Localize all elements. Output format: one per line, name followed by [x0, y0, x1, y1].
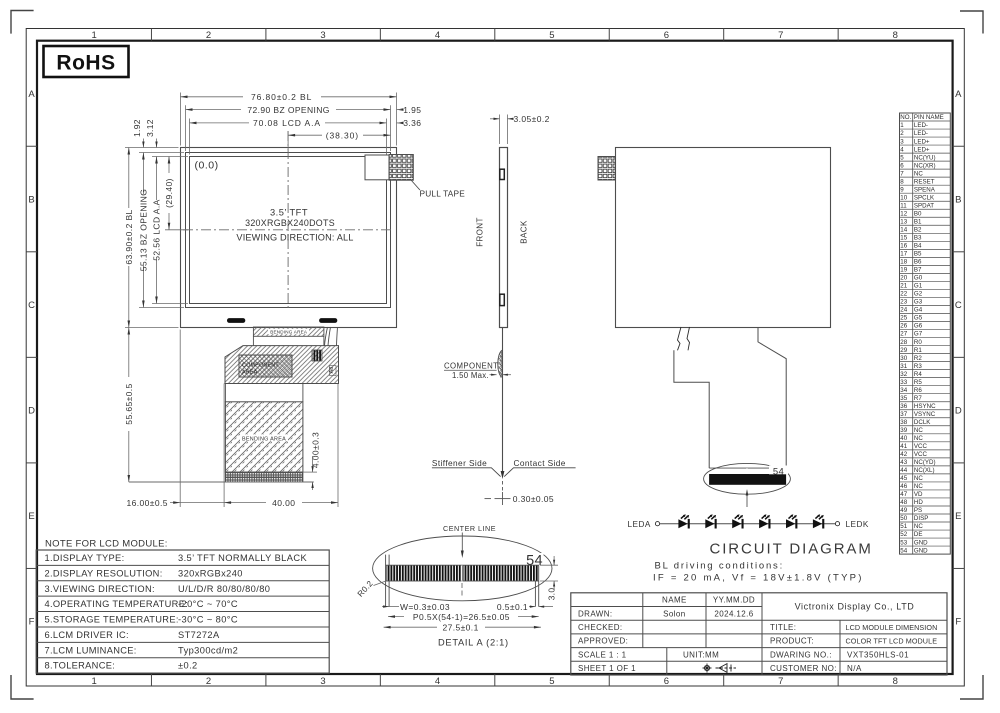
svg-text:44: 44 — [900, 467, 907, 474]
svg-text:72.90 BZ OPENING: 72.90 BZ OPENING — [247, 105, 329, 115]
svg-text:55.65±0.5: 55.65±0.5 — [124, 383, 134, 424]
svg-text:2: 2 — [900, 130, 904, 137]
svg-text:COLOR TFT LCD MODULE: COLOR TFT LCD MODULE — [846, 637, 938, 646]
svg-text:9: 9 — [900, 186, 904, 193]
svg-text:BENDING AREA: BENDING AREA — [270, 330, 308, 335]
svg-text:B: B — [28, 194, 35, 205]
svg-text:0.5±0.1: 0.5±0.1 — [497, 602, 528, 612]
svg-text:1.50 Max.: 1.50 Max. — [452, 371, 489, 380]
svg-text:NC: NC — [914, 475, 923, 482]
svg-text:1: 1 — [91, 30, 96, 41]
svg-text:3.05±0.2: 3.05±0.2 — [514, 114, 550, 124]
svg-text:12: 12 — [900, 210, 907, 217]
svg-text:B5: B5 — [914, 251, 922, 258]
svg-text:54: 54 — [526, 553, 543, 569]
svg-text:G4: G4 — [914, 307, 923, 314]
svg-text:NC: NC — [914, 427, 923, 434]
svg-text:23: 23 — [900, 299, 907, 306]
svg-text:PRODUCT:: PRODUCT: — [770, 637, 814, 646]
svg-text:31: 31 — [900, 363, 907, 370]
svg-text:17: 17 — [900, 251, 907, 258]
svg-text:0.30±0.05: 0.30±0.05 — [513, 494, 554, 504]
svg-text:16.00±0.5: 16.00±0.5 — [127, 498, 168, 508]
svg-text:R1: R1 — [914, 347, 922, 354]
svg-text:3: 3 — [320, 30, 325, 41]
svg-text:18: 18 — [900, 259, 907, 266]
svg-text:40: 40 — [900, 435, 907, 442]
svg-text:55.13 BZ OPENING: 55.13 BZ OPENING — [139, 189, 149, 271]
svg-text:2: 2 — [206, 676, 211, 687]
svg-text:E: E — [955, 511, 962, 522]
svg-text:G2: G2 — [914, 291, 923, 298]
svg-text:30: 30 — [900, 355, 907, 362]
svg-text:NC: NC — [914, 483, 923, 490]
svg-text:F: F — [955, 617, 961, 628]
svg-text:8: 8 — [900, 178, 904, 185]
svg-text:HD: HD — [914, 499, 923, 506]
svg-text:7: 7 — [900, 170, 904, 177]
svg-text:W=0.3±0.03: W=0.3±0.03 — [400, 602, 450, 612]
svg-text:3.36: 3.36 — [403, 118, 421, 128]
svg-text:COMPONENT: COMPONENT — [444, 362, 498, 371]
svg-text:8: 8 — [893, 676, 898, 687]
svg-text:NAME: NAME — [662, 596, 687, 605]
svg-text:B4: B4 — [914, 243, 922, 250]
svg-text:4.OPERATING TEMPERATURE:: 4.OPERATING TEMPERATURE: — [45, 599, 189, 609]
svg-text:Typ300cd/m2: Typ300cd/m2 — [178, 645, 238, 655]
svg-text:2024.12.6: 2024.12.6 — [714, 609, 753, 618]
svg-text:1.DISPLAY TYPE:: 1.DISPLAY TYPE: — [45, 553, 125, 563]
svg-text:(29.40): (29.40) — [164, 178, 174, 208]
svg-text:CHECKED:: CHECKED: — [578, 623, 623, 632]
svg-text:B6: B6 — [914, 259, 922, 266]
svg-text:SHEET 1 OF 1: SHEET 1 OF 1 — [578, 664, 636, 673]
svg-text:B2: B2 — [914, 226, 922, 233]
svg-text:28: 28 — [900, 339, 907, 346]
svg-text:41: 41 — [900, 443, 907, 450]
svg-text:63.90±0.2 BL: 63.90±0.2 BL — [124, 209, 134, 264]
svg-text:SPDAT: SPDAT — [914, 202, 934, 209]
svg-text:6.LCM DRIVER IC:: 6.LCM DRIVER IC: — [45, 630, 129, 640]
svg-text:COMPONENT: COMPONENT — [242, 363, 279, 369]
svg-text:Victronix Display Co., LTD: Victronix Display Co., LTD — [795, 602, 915, 612]
svg-text:NC(XR): NC(XR) — [914, 162, 936, 169]
svg-text:U/L/D/R 80/80/80/80: U/L/D/R 80/80/80/80 — [178, 584, 270, 594]
svg-text:10: 10 — [900, 194, 907, 201]
svg-text:43: 43 — [900, 459, 907, 466]
svg-text:5.STORAGE TEMPERATURE:: 5.STORAGE TEMPERATURE: — [45, 615, 179, 625]
svg-text:3.5’ TFT: 3.5’ TFT — [270, 208, 308, 218]
svg-text:45: 45 — [900, 475, 907, 482]
svg-text:PULL TAPE: PULL TAPE — [420, 189, 466, 199]
svg-text:22: 22 — [900, 291, 907, 298]
svg-text:B1: B1 — [914, 218, 922, 225]
svg-text:RESET: RESET — [914, 178, 935, 185]
svg-text:2: 2 — [206, 30, 211, 41]
svg-text:G7: G7 — [914, 331, 923, 338]
svg-text:7.LCM LUMINANCE:: 7.LCM LUMINANCE: — [45, 645, 137, 655]
svg-text:42: 42 — [900, 451, 907, 458]
svg-text:B7: B7 — [914, 267, 922, 274]
svg-text:54: 54 — [773, 467, 784, 478]
svg-text:8.TOLERANCE:: 8.TOLERANCE: — [45, 661, 116, 671]
svg-text:70.08 LCD A.A: 70.08 LCD A.A — [253, 118, 321, 128]
svg-text:VD: VD — [914, 491, 923, 498]
svg-text:FRONT: FRONT — [476, 217, 485, 247]
svg-text:27.5±0.1: 27.5±0.1 — [442, 622, 478, 632]
svg-text:54: 54 — [900, 547, 907, 554]
svg-text:CUSTOMER NO:: CUSTOMER NO: — [770, 664, 837, 673]
svg-text:RoHS: RoHS — [56, 52, 115, 75]
svg-text:3: 3 — [320, 676, 325, 687]
svg-text:19: 19 — [900, 267, 907, 274]
svg-text:PS: PS — [914, 507, 922, 514]
svg-text:NC: NC — [914, 523, 923, 530]
svg-text:BACK: BACK — [520, 220, 529, 244]
svg-text:48: 48 — [900, 499, 907, 506]
svg-text:LEDA: LEDA — [628, 520, 651, 529]
svg-text:TITLE:: TITLE: — [770, 623, 796, 632]
svg-text:8: 8 — [893, 30, 898, 41]
svg-text:5: 5 — [549, 30, 554, 41]
svg-text:NC(YD): NC(YD) — [914, 459, 936, 466]
svg-text:35: 35 — [900, 395, 907, 402]
svg-text:11: 11 — [900, 202, 907, 209]
svg-text:R3: R3 — [914, 363, 922, 370]
svg-text:4: 4 — [435, 30, 440, 41]
svg-text:(0.0): (0.0) — [195, 160, 219, 172]
svg-text:53: 53 — [900, 539, 907, 546]
svg-text:52.56 LCD A.A: 52.56 LCD A.A — [152, 199, 162, 260]
svg-text:PIN NAME: PIN NAME — [914, 114, 944, 121]
svg-text:20: 20 — [900, 275, 907, 282]
svg-text:-20°C ~ 70°C: -20°C ~ 70°C — [178, 599, 238, 609]
svg-text:N/A: N/A — [847, 664, 862, 673]
svg-text:VCC: VCC — [914, 451, 928, 458]
svg-text:A: A — [955, 89, 962, 100]
svg-text:LED+: LED+ — [914, 146, 930, 153]
svg-text:G0: G0 — [914, 275, 923, 282]
svg-text:7: 7 — [778, 676, 783, 687]
svg-text:HSYNC: HSYNC — [914, 403, 936, 410]
svg-text:±0.2: ±0.2 — [178, 661, 198, 671]
svg-text:R7: R7 — [914, 395, 922, 402]
svg-text:(38.30): (38.30) — [326, 130, 359, 140]
svg-text:R4: R4 — [914, 371, 922, 378]
svg-text:34: 34 — [900, 387, 907, 394]
svg-text:6: 6 — [900, 162, 904, 169]
svg-text:47: 47 — [900, 491, 907, 498]
svg-text:2.DISPLAY RESOLUTION:: 2.DISPLAY RESOLUTION: — [45, 568, 163, 578]
svg-text:NO.: NO. — [900, 114, 911, 121]
svg-text:NC: NC — [914, 435, 923, 442]
svg-text:B0: B0 — [914, 210, 922, 217]
svg-text:C: C — [955, 300, 962, 311]
svg-text:25: 25 — [900, 315, 907, 322]
svg-text:DWARING NO.:: DWARING NO.: — [770, 650, 832, 659]
svg-text:14: 14 — [900, 226, 907, 233]
svg-text:VCC: VCC — [914, 443, 928, 450]
svg-text:29: 29 — [900, 347, 907, 354]
svg-text:1.95: 1.95 — [403, 105, 421, 115]
svg-text:DCLK: DCLK — [914, 419, 931, 426]
svg-text:40.00: 40.00 — [272, 498, 295, 508]
svg-text:NC(YU): NC(YU) — [914, 154, 936, 161]
svg-text:Solon: Solon — [663, 609, 685, 618]
svg-text:LED-: LED- — [914, 122, 928, 129]
svg-text:4: 4 — [435, 676, 440, 687]
svg-text:27: 27 — [900, 331, 907, 338]
svg-text:R2: R2 — [914, 355, 922, 362]
svg-text:D: D — [28, 406, 35, 417]
svg-text:GND: GND — [914, 539, 928, 546]
svg-text:32: 32 — [900, 371, 907, 378]
svg-text:R0: R0 — [914, 339, 922, 346]
svg-text:49: 49 — [900, 507, 907, 514]
svg-text:APPROVED:: APPROVED: — [578, 637, 628, 646]
svg-text:SPCLK: SPCLK — [914, 194, 935, 201]
svg-text:3.5’ TFT NORMALLY BLACK: 3.5’ TFT NORMALLY BLACK — [178, 553, 307, 563]
svg-text:LED-: LED- — [914, 130, 928, 137]
svg-text:16: 16 — [900, 243, 907, 250]
svg-text:NC(XL): NC(XL) — [914, 467, 935, 474]
svg-text:B: B — [955, 194, 962, 205]
svg-text:AREA: AREA — [242, 370, 258, 376]
svg-text:320xRGBx240: 320xRGBx240 — [178, 568, 243, 578]
svg-text:NC: NC — [914, 170, 923, 177]
svg-text:24: 24 — [900, 307, 907, 314]
svg-text:E: E — [28, 511, 35, 522]
svg-text:G3: G3 — [914, 299, 923, 306]
svg-text:6: 6 — [664, 676, 669, 687]
svg-text:GND: GND — [914, 547, 928, 554]
svg-text:52: 52 — [900, 531, 907, 538]
svg-text:1: 1 — [900, 122, 904, 129]
svg-text:3: 3 — [900, 138, 904, 145]
svg-text:LED+: LED+ — [914, 138, 930, 145]
svg-text:51: 51 — [900, 523, 907, 530]
svg-text:B3: B3 — [914, 235, 922, 242]
svg-text:P0.5X(54-1)=26.5±0.05: P0.5X(54-1)=26.5±0.05 — [413, 612, 510, 622]
svg-text:G1: G1 — [914, 283, 923, 290]
svg-text:DRAWN:: DRAWN: — [578, 609, 613, 618]
svg-text:UNIT:MM: UNIT:MM — [683, 650, 719, 659]
svg-text:VXT350HLS-01: VXT350HLS-01 — [847, 650, 909, 659]
svg-text:Contact Side: Contact Side — [514, 458, 566, 468]
svg-text:BL driving conditions:: BL driving conditions: — [655, 561, 785, 572]
svg-text:320XRGBX240DOTS: 320XRGBX240DOTS — [245, 218, 335, 228]
svg-text:R5: R5 — [914, 379, 922, 386]
svg-text:5: 5 — [900, 154, 904, 161]
svg-text:F: F — [29, 617, 35, 628]
svg-text:3.12: 3.12 — [145, 119, 155, 137]
svg-text:VSYNC: VSYNC — [914, 411, 936, 418]
svg-text:33: 33 — [900, 379, 907, 386]
svg-text:G6: G6 — [914, 323, 923, 330]
svg-text:26: 26 — [900, 323, 907, 330]
svg-text:39: 39 — [900, 427, 907, 434]
svg-text:D: D — [955, 406, 962, 417]
svg-text:LCD MODULE DIMENSION: LCD MODULE DIMENSION — [846, 623, 938, 632]
svg-text:3.VIEWING DIRECTION:: 3.VIEWING DIRECTION: — [45, 584, 155, 594]
svg-text:15: 15 — [900, 235, 907, 242]
svg-text:IF = 20 mA, Vf = 18V±1.8V (TYP: IF = 20 mA, Vf = 18V±1.8V (TYP) — [653, 573, 864, 584]
svg-text:SPENA: SPENA — [914, 186, 936, 193]
svg-text:NOTE FOR LCD MODULE:: NOTE FOR LCD MODULE: — [45, 539, 168, 550]
svg-text:G5: G5 — [914, 315, 923, 322]
svg-text:YY.MM.DD: YY.MM.DD — [713, 596, 755, 605]
svg-text:7: 7 — [778, 30, 783, 41]
svg-text:CIRCUIT DIAGRAM: CIRCUIT DIAGRAM — [710, 541, 873, 558]
svg-text:C: C — [28, 300, 35, 311]
svg-text:DE: DE — [914, 531, 923, 538]
svg-text:A8: A8 — [329, 367, 335, 374]
svg-text:4.00±0.3: 4.00±0.3 — [311, 432, 321, 468]
svg-text:46: 46 — [900, 483, 907, 490]
svg-text:LEDK: LEDK — [846, 520, 869, 529]
svg-text:DISP: DISP — [914, 515, 928, 522]
svg-text:ST7272A: ST7272A — [178, 630, 220, 640]
svg-text:CENTER LINE: CENTER LINE — [443, 524, 496, 533]
svg-text:BENDING AREA: BENDING AREA — [242, 437, 286, 443]
svg-text:Stiffener Side: Stiffener Side — [432, 458, 487, 468]
svg-text:1: 1 — [91, 676, 96, 687]
svg-text:-30°C ~ 80°C: -30°C ~ 80°C — [178, 615, 238, 625]
svg-text:6: 6 — [664, 30, 669, 41]
svg-text:R6: R6 — [914, 387, 922, 394]
svg-text:3.0: 3.0 — [547, 588, 557, 601]
svg-text:50: 50 — [900, 515, 907, 522]
svg-text:5: 5 — [549, 676, 554, 687]
svg-text:VIEWING DIRECTION: ALL: VIEWING DIRECTION: ALL — [236, 233, 353, 243]
svg-text:1.92: 1.92 — [132, 119, 142, 137]
svg-text:A: A — [28, 89, 35, 100]
svg-text:SCALE 1 : 1: SCALE 1 : 1 — [578, 650, 627, 659]
svg-text:DETAIL A (2:1): DETAIL A (2:1) — [438, 638, 509, 648]
svg-text:76.80±0.2 BL: 76.80±0.2 BL — [251, 92, 312, 102]
svg-text:37: 37 — [900, 411, 907, 418]
svg-text:21: 21 — [900, 283, 907, 290]
svg-text:36: 36 — [900, 403, 907, 410]
svg-text:13: 13 — [900, 218, 907, 225]
svg-text:38: 38 — [900, 419, 907, 426]
svg-text:4: 4 — [900, 146, 904, 153]
